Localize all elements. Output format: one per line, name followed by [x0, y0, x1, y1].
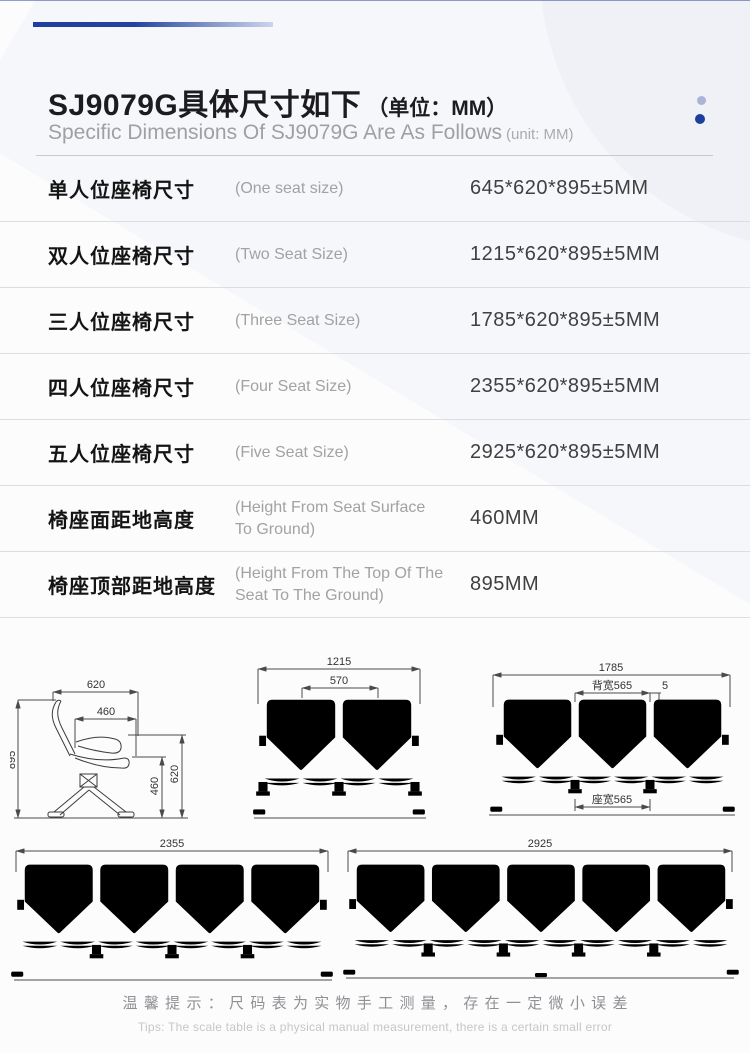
spec-row-one-seat: 单人位座椅尺寸 (One seat size) 645*620*895±5MM — [0, 156, 750, 222]
spec-label-cn: 三人位座椅尺寸 — [48, 306, 235, 335]
chair-outline — [48, 700, 134, 817]
spec-value: 895MM — [470, 573, 539, 596]
svg-text:620: 620 — [169, 765, 181, 783]
page-subtitle: Specific Dimensions Of SJ9079G Are As Fo… — [48, 121, 574, 145]
svg-text:570: 570 — [330, 675, 348, 687]
spec-label-en: (Height From Seat Surface To Ground) — [235, 497, 470, 540]
spec-value: 1785*620*895±5MM — [470, 309, 660, 332]
footer-tips: 温馨提示：尺码表为实物手工测量，存在一定微小误差 Tips: The scale… — [0, 992, 750, 1034]
decor-dot-dark — [695, 114, 705, 124]
spec-value: 1215*620*895±5MM — [470, 243, 660, 266]
dimension-lines: 620 460 895 460 620 — [10, 679, 188, 818]
svg-text:1785: 1785 — [599, 662, 623, 674]
spec-value: 2355*620*895±5MM — [470, 375, 660, 398]
bench-outline — [253, 700, 425, 815]
bench-outline — [11, 865, 333, 977]
spec-value: 645*620*895±5MM — [470, 177, 649, 200]
page-title: SJ9079G具体尺寸如下（单位：MM） — [48, 80, 507, 124]
spec-row-four-seat: 四人位座椅尺寸 (Four Seat Size) 2355*620*895±5M… — [0, 354, 750, 420]
page-subtitle-en: Specific Dimensions Of SJ9079G Are As Fo… — [48, 121, 502, 144]
accent-gradient-bar — [33, 22, 273, 27]
spec-row-top-height: 椅座顶部距地高度 (Height From The Top Of The Sea… — [0, 552, 750, 618]
spec-value: 2925*620*895±5MM — [470, 441, 660, 464]
spec-label-cn: 五人位座椅尺寸 — [48, 438, 235, 467]
spec-value: 460MM — [470, 507, 539, 530]
spec-label-en: (One seat size) — [235, 178, 470, 200]
spec-label-cn: 椅座面距地高度 — [48, 504, 235, 533]
spec-label-en: (Four Seat Size) — [235, 376, 470, 398]
svg-text:620: 620 — [87, 679, 105, 691]
svg-text:背宽565: 背宽565 — [592, 678, 632, 692]
page-subtitle-unit: (unit: MM) — [506, 126, 574, 143]
decor-dot-light — [697, 96, 706, 105]
svg-text:1215: 1215 — [327, 656, 351, 668]
spec-label-cn: 四人位座椅尺寸 — [48, 372, 235, 401]
two-seat-front-view-drawing: 1215 570 — [238, 652, 442, 828]
spec-label-cn: 椅座顶部距地高度 — [48, 570, 235, 599]
bench-outline — [343, 865, 739, 977]
spec-label-en: (Height From The Top Of The Seat To The … — [235, 563, 470, 606]
spec-row-three-seat: 三人位座椅尺寸 (Three Seat Size) 1785*620*895±5… — [0, 288, 750, 354]
svg-text:5: 5 — [662, 680, 668, 692]
svg-text:460: 460 — [97, 706, 115, 718]
spec-label-en: (Two Seat Size) — [235, 244, 470, 266]
four-seat-front-view-drawing: 2355 — [10, 838, 340, 986]
single-seat-side-view-drawing: 620 460 895 460 620 — [10, 648, 210, 828]
spec-table: 单人位座椅尺寸 (One seat size) 645*620*895±5MM … — [0, 156, 750, 618]
top-hairline — [0, 0, 750, 1]
spec-row-seat-height: 椅座面距地高度 (Height From Seat Surface To Gro… — [0, 486, 750, 552]
page-title-cn: SJ9079G具体尺寸如下 — [48, 89, 361, 122]
three-seat-front-view-drawing: 1785 背宽565 5 座宽565 — [465, 655, 750, 835]
svg-text:895: 895 — [10, 751, 18, 769]
svg-text:2355: 2355 — [160, 838, 184, 850]
spec-label-cn: 双人位座椅尺寸 — [48, 240, 235, 269]
tip-text-cn: 温馨提示：尺码表为实物手工测量，存在一定微小误差 — [0, 992, 750, 1013]
svg-text:座宽565: 座宽565 — [592, 792, 632, 806]
spec-row-five-seat: 五人位座椅尺寸 (Five Seat Size) 2925*620*895±5M… — [0, 420, 750, 486]
five-seat-front-view-drawing: 2925 — [342, 838, 748, 986]
page-title-unit: （单位：MM） — [367, 97, 507, 120]
spec-label-en: (Five Seat Size) — [235, 442, 470, 464]
spec-row-two-seat: 双人位座椅尺寸 (Two Seat Size) 1215*620*895±5MM — [0, 222, 750, 288]
svg-text:2925: 2925 — [528, 838, 552, 850]
svg-text:460: 460 — [149, 777, 161, 795]
spec-label-cn: 单人位座椅尺寸 — [48, 174, 235, 203]
tip-text-en: Tips: The scale table is a physical manu… — [0, 1020, 750, 1034]
spec-label-en: (Three Seat Size) — [235, 310, 470, 332]
